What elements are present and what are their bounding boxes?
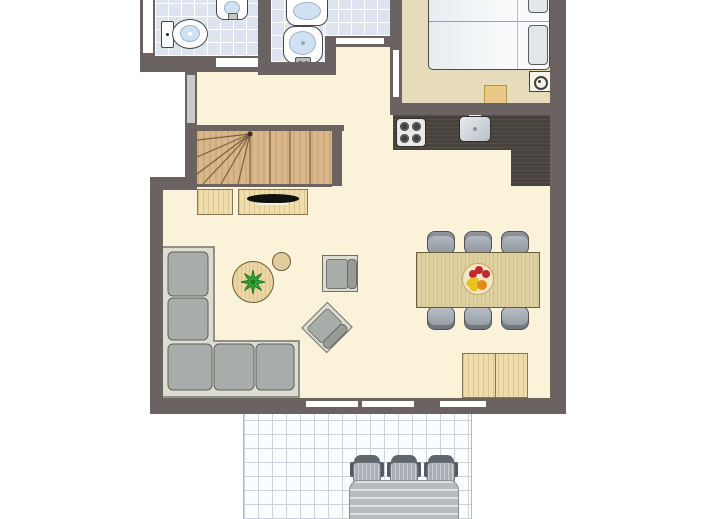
sideboard-divider [495,354,496,397]
bathroom-sink [286,0,328,26]
side-table [272,252,291,271]
window-living-right [440,401,486,407]
wall-bedroom-bottom [390,103,566,115]
bedroom-stool [484,85,507,104]
sink-drain [473,127,477,131]
fruit-orange [477,280,487,290]
mattress-divider [429,21,549,22]
door-bathroom [336,38,384,44]
fruit-bowl [462,263,494,295]
kitchen-sink [459,116,491,142]
dining-chair [427,306,455,330]
sliding-door-panel [362,401,414,407]
dining-chair [501,306,529,330]
wall-living-left [150,177,163,414]
burner [400,122,409,131]
dining-chair [464,306,492,330]
stair-treads [197,131,332,184]
sliding-door-panel [306,401,358,407]
pillow [528,0,548,13]
garden-table [349,480,459,519]
wc-sink [216,0,248,20]
door-bedroom [393,50,399,97]
shower-tile-floor [325,0,390,36]
pedestal-basin-dot [301,41,305,45]
pillow [528,25,548,65]
stove [396,118,426,147]
floor-plan-canvas [0,0,713,519]
wall-stairs-top [197,125,344,131]
cabinet [197,189,233,215]
door-hinge-dot [166,33,169,36]
window-bath-left [143,0,153,53]
wall-right [550,0,566,414]
bathroom-sink-basin [293,2,321,20]
newel-post [248,132,253,137]
wall-stairs-right [332,125,342,186]
toilet-drain [188,32,192,36]
fruit-red [482,270,490,278]
burner [400,134,409,143]
burner [412,122,421,131]
door-wc [216,58,258,67]
wall-wc-bath-divider [258,0,271,62]
lamp-ring [534,76,548,90]
duvet-edge [517,0,518,69]
kitchen-counter-side [511,150,553,186]
armchair-seat [326,259,348,289]
stairs-bottom-edge [197,184,332,187]
bedroom-lamp [529,71,551,92]
tv-stand-line [258,203,288,205]
wall-bottom [150,398,566,414]
armchair-back [347,259,357,289]
sideboard-cabinet [462,353,528,398]
toilet-bowl [172,19,208,49]
entrance-door [187,75,195,123]
plant-icon [239,268,267,296]
burner [412,134,421,143]
staircase [197,131,332,184]
lamp-dot [538,80,541,83]
tv [247,194,299,203]
armchair [322,255,358,292]
wc-sink-tap [228,13,238,20]
